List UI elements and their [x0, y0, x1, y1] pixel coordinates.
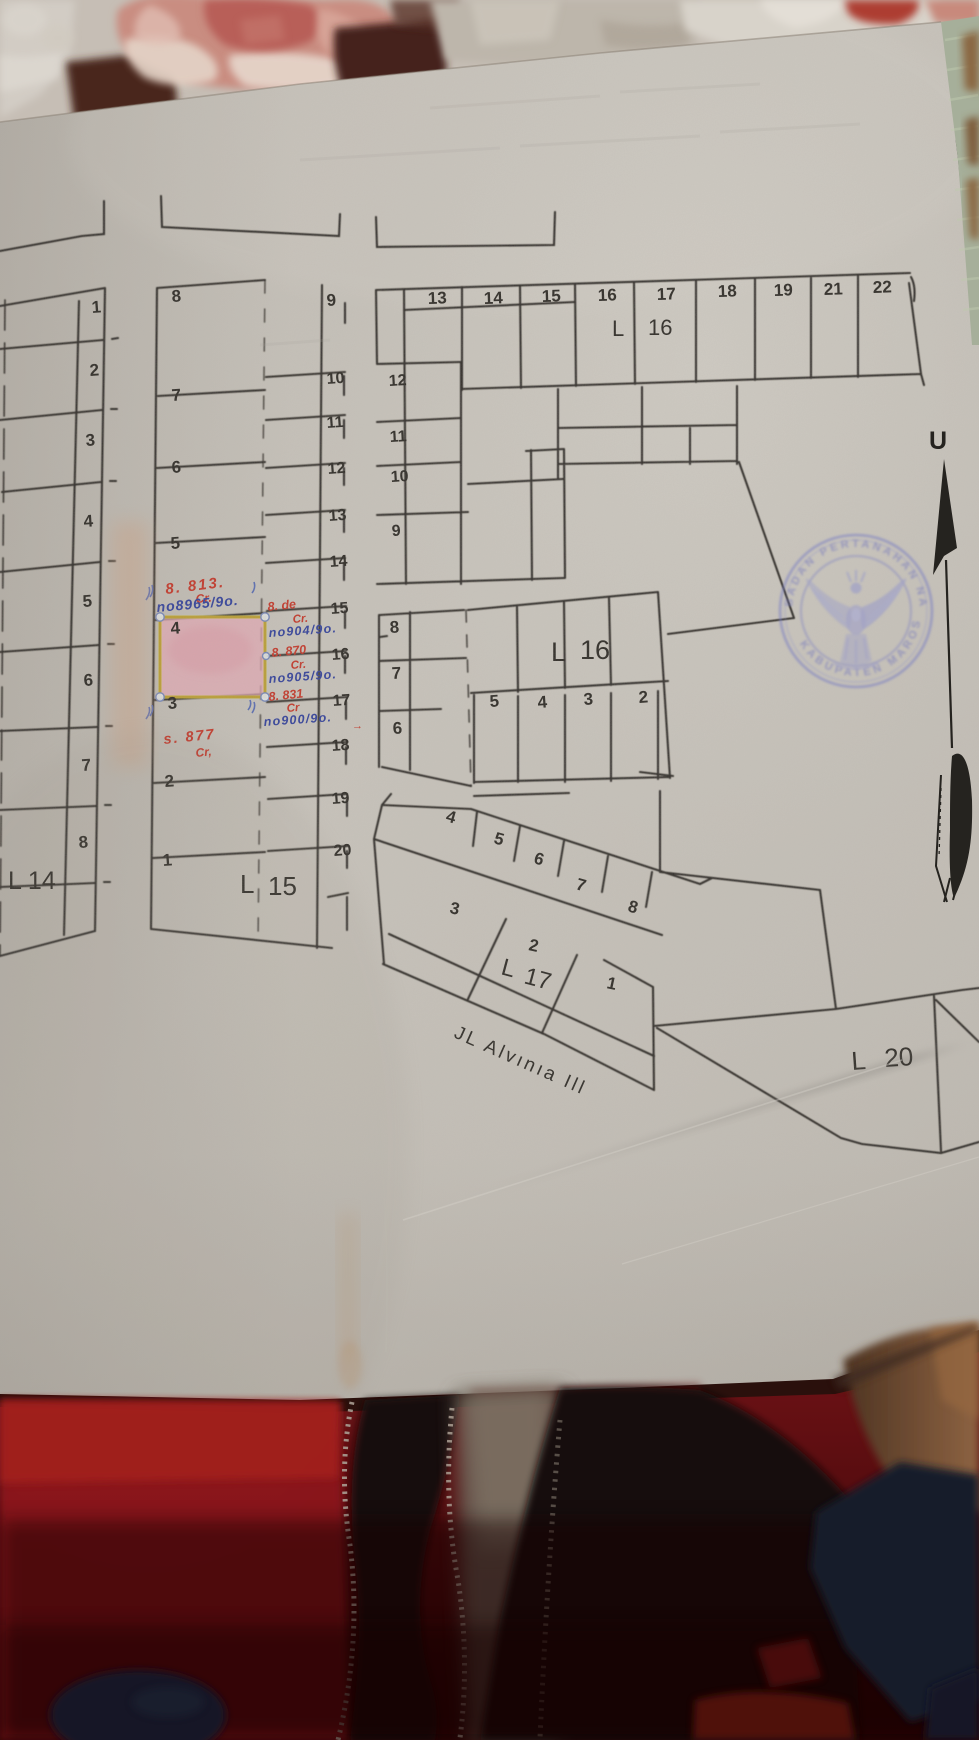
svg-text:U: U: [929, 427, 947, 455]
